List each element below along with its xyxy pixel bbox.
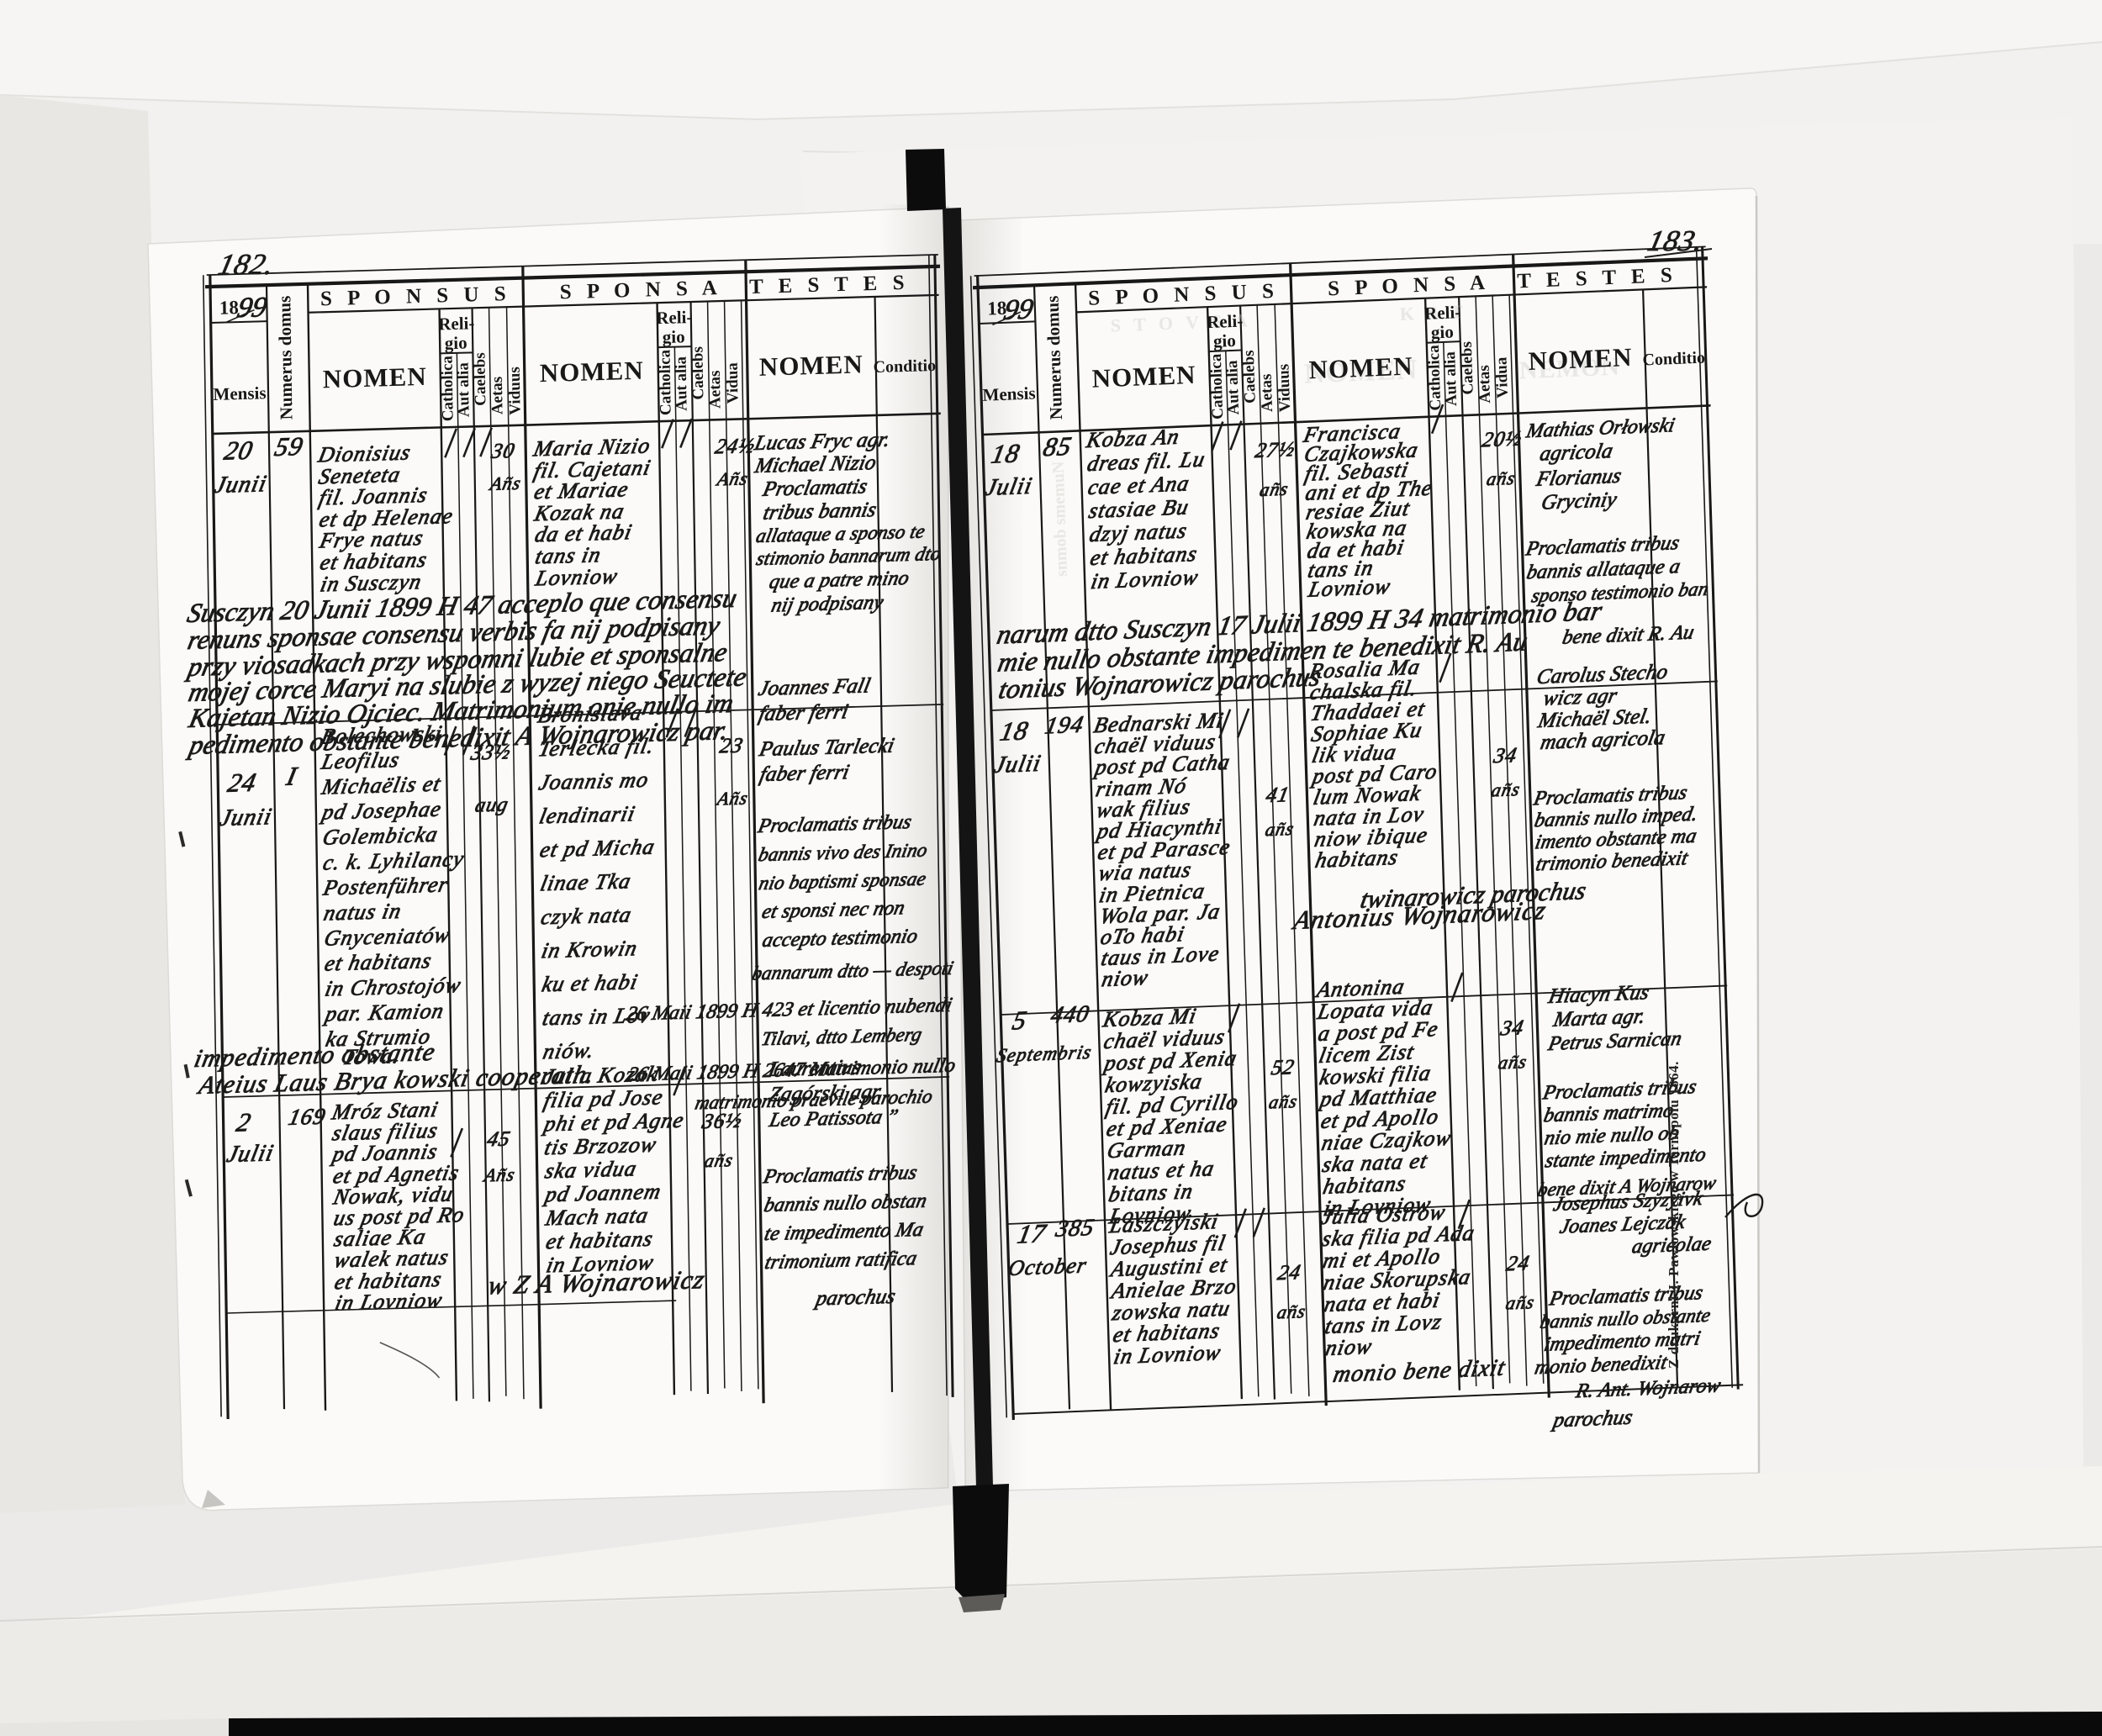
svg-text:natus in: natus in [322,898,404,925]
svg-text:añs: añs [1504,1291,1537,1313]
svg-text:24½: 24½ [713,434,758,458]
svg-text:182.: 182. [215,247,277,280]
svg-text:Gryciniy: Gryciniy [1540,488,1619,514]
svg-text:añs: añs [703,1149,736,1171]
svg-text:NOMEN: NOMEN [1308,351,1413,384]
svg-text:añs: añs [1267,1090,1300,1112]
svg-text:Marta agr.: Marta agr. [1550,1005,1647,1032]
svg-text:parochus: parochus [1550,1406,1635,1433]
svg-text:S P O N S A: S P O N S A [560,277,723,303]
svg-text:52: 52 [1270,1055,1297,1079]
svg-text:Lovniow: Lovniow [1306,573,1393,602]
svg-text:te impedimento Ma: te impedimento Ma [763,1218,926,1245]
svg-text:October: October [1006,1252,1090,1280]
svg-text:Aut alia: Aut alia [455,361,473,417]
svg-text:c. k. Lyhilancy: c. k. Lyhilancy [321,846,467,874]
svg-text:Reli-: Reli- [656,307,693,328]
svg-text:27½: 27½ [1254,437,1298,462]
svg-text:Joannes Fall: Joannes Fall [757,674,873,700]
svg-text:in Krowin: in Krowin [539,935,640,963]
svg-text:NOMEN: NOMEN [540,356,644,388]
svg-text:et pd Micha: et pd Micha [538,834,658,863]
svg-text:Hiacyn Kus: Hiacyn Kus [1545,980,1651,1008]
svg-text:w Z A Wojnarowicz: w Z A Wojnarowicz [485,1264,708,1300]
svg-text:169: 169 [286,1104,328,1130]
svg-text:in Chrostojów: in Chrostojów [323,972,464,1000]
svg-text:Proclamatis: Proclamatis [760,475,869,501]
svg-text:añs: añs [1485,467,1518,489]
svg-text:Postenführer: Postenführer [320,872,451,900]
svg-text:NOMEN: NOMEN [1091,360,1196,393]
svg-text:tribus bannis: tribus bannis [761,498,879,525]
svg-text:Aut alia: Aut alia [673,356,691,411]
svg-text:385: 385 [1053,1215,1096,1243]
svg-text:nij podpisany: nij podpisany [769,591,885,616]
svg-text:faber ferri: faber ferri [757,699,851,726]
svg-text:Leo Patissota ˮ: Leo Patissota ˮ [767,1105,901,1132]
svg-text:Reli-: Reli- [1424,302,1461,324]
svg-text:Vidua: Vidua [724,361,742,404]
svg-text:Aetas: Aetas [1258,373,1276,412]
svg-text:Reli-: Reli- [1207,310,1244,332]
svg-text:gio: gio [445,333,467,354]
svg-text:Añs: Añs [481,1164,518,1186]
svg-text:Junii: Junii [212,471,269,498]
svg-text:183.: 183. [1645,224,1707,256]
svg-text:gio: gio [663,326,685,347]
svg-text:Julii: Julii [992,751,1043,778]
svg-text:Viduus: Viduus [506,367,525,415]
svg-text:añs: añs [1264,818,1297,840]
svg-text:Caelebs: Caelebs [1458,341,1477,395]
svg-text:parochus: parochus [812,1285,898,1310]
svg-text:niow: niow [1100,964,1151,991]
svg-text:Michaëlis et: Michaëlis et [319,771,443,799]
svg-text:et habitans: et habitans [323,947,435,975]
svg-text:Conditio: Conditio [873,356,936,377]
svg-text:gio: gio [1213,330,1237,351]
svg-text:34: 34 [1498,1016,1527,1040]
svg-text:24: 24 [1504,1251,1532,1275]
svg-text:440: 440 [1048,1001,1091,1029]
svg-text:Reli-: Reli- [438,313,475,334]
svg-text:Michael Nizio: Michael Nizio [753,451,879,478]
svg-text:Caelebs: Caelebs [689,346,707,400]
svg-text:snmob smemuN: snmob smemuN [1049,461,1071,578]
svg-text:Terlecka fil.: Terlecka fil. [536,733,658,762]
svg-text:linae Tka: linae Tka [538,868,634,896]
svg-text:Mensis: Mensis [982,383,1036,405]
svg-text:Leofilus: Leofilus [319,747,403,773]
svg-text:Joannis mo: Joannis mo [536,767,651,794]
svg-text:NOMEN: NOMEN [1528,342,1633,376]
svg-text:Vidua: Vidua [1492,356,1512,398]
svg-text:Numerus domus: Numerus domus [1042,295,1066,419]
svg-text:Añs: Añs [714,788,751,810]
svg-text:20½: 20½ [1481,427,1525,452]
svg-text:41: 41 [1264,783,1291,807]
svg-text:Mensis: Mensis [213,383,266,404]
svg-text:36½: 36½ [700,1109,745,1133]
svg-text:24: 24 [1275,1260,1303,1285]
svg-text:Golembicka: Golembicka [320,821,441,850]
svg-text:añs: añs [1490,778,1523,800]
svg-text:Julii: Julii [224,1141,277,1168]
svg-text:tis Brzozow: tis Brzozow [542,1132,659,1159]
svg-text:Aetas: Aetas [1476,365,1494,404]
svg-text:Añs: Añs [487,472,524,494]
svg-text:Aetas: Aetas [489,377,507,415]
svg-text:Bolechowski: Bolechowski [319,720,445,749]
svg-text:Gnyceniatów: Gnyceniatów [322,922,453,951]
svg-text:et sponsi nec non: et sponsi nec non [760,897,907,923]
svg-text:Proclamatis tribus: Proclamatis tribus [761,1161,920,1188]
svg-text:Junii: Junii [218,804,275,831]
svg-text:accepto testimonio: accepto testimonio [760,925,920,952]
svg-text:Zagórski agr.: Zagórski agr. [767,1079,886,1106]
svg-text:Paulus Tarlecki: Paulus Tarlecki [757,734,897,761]
svg-text:Tilavi, dtto Lemberg: Tilavi, dtto Lemberg [759,1024,924,1050]
svg-text:Z drukarni J. Pawłowskiego w T: Z drukarni J. Pawłowskiego w Tarnopolu 1… [1666,1061,1682,1369]
svg-text:in Lovniow: in Lovniow [333,1287,446,1315]
svg-text:añs: añs [1497,1051,1529,1073]
svg-text:T E S T E S: T E S T E S [749,272,910,298]
svg-text:Caelebs: Caelebs [471,352,489,406]
svg-text:34: 34 [1491,743,1519,768]
svg-text:gio: gio [1431,321,1455,342]
svg-text:Numerus domus: Numerus domus [274,295,296,419]
svg-text:trimonium ratifica: trimonium ratifica [763,1247,919,1274]
svg-text:33½: 33½ [468,741,514,765]
svg-text:Caelebs: Caelebs [1240,350,1260,404]
svg-text:Conditio: Conditio [1642,349,1705,370]
svg-text:que a patre mino: que a patre mino [768,567,911,593]
svg-text:pd Josephae: pd Josephae [319,796,445,825]
svg-text:phi et pd Agne: phi et pd Agne [541,1107,687,1136]
svg-text:Añs: Añs [714,467,751,489]
svg-text:añs: añs [1275,1301,1308,1322]
svg-text:Laurentius: Laurentius [766,1055,864,1081]
svg-text:ku et habi: ku et habi [540,968,641,996]
svg-text:NOMEN: NOMEN [323,361,427,393]
svg-text:in Lovniow: in Lovniow [1112,1339,1223,1369]
svg-text:añs: añs [1258,478,1291,500]
svg-text:NOMEN: NOMEN [759,349,864,381]
svg-text:aug: aug [473,794,511,817]
svg-text:faber ferri: faber ferri [758,760,852,786]
svg-text:Aetas: Aetas [706,370,725,409]
svg-text:Septembris: Septembris [995,1042,1094,1067]
svg-text:in Lovniow: in Lovniow [1089,564,1201,594]
svg-text:czyk nata: czyk nata [539,902,635,930]
svg-text:niow: niow [1323,1333,1375,1360]
svg-text:Bronislava: Bronislava [536,699,645,727]
svg-text:lendinarii: lendinarii [537,800,638,828]
svg-text:Florianus: Florianus [1534,464,1624,491]
svg-text:Julii: Julii [983,473,1034,501]
svg-text:par. Kamion: par. Kamion [322,998,447,1026]
svg-text:habitans: habitans [1313,844,1401,873]
svg-text:194: 194 [1043,712,1085,740]
svg-text:bannis nullo obstan: bannis nullo obstan [762,1190,929,1216]
svg-text:agricola: agricola [1538,439,1615,465]
svg-text:Proclamatis tribus: Proclamatis tribus [755,810,914,837]
svg-text:Viduus: Viduus [1275,363,1294,412]
